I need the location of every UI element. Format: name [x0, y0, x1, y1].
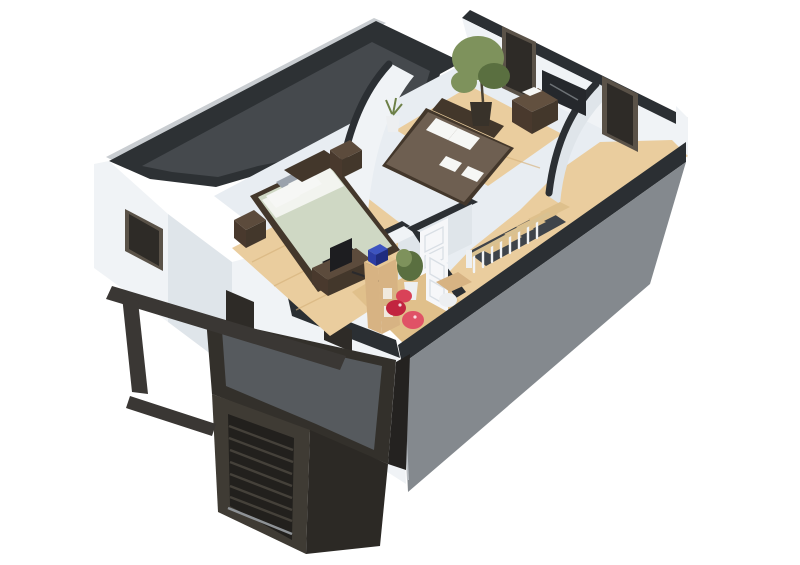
pouf-highlight — [398, 303, 401, 306]
plant-pot — [470, 102, 492, 126]
pouf-highlight — [413, 315, 416, 318]
white-plant-pot — [386, 116, 400, 132]
white-seat — [439, 293, 457, 307]
red-pouf — [402, 311, 424, 329]
shelf-cubby — [383, 288, 392, 299]
floorplan-render: 3D cutaway floor plan render - upper flo… — [0, 0, 800, 565]
red-pouf — [386, 300, 406, 316]
plant-foliage-shade — [478, 63, 510, 89]
floorplan-svg: 3D cutaway floor plan render - upper flo… — [0, 0, 800, 565]
shelf-desk — [364, 253, 400, 334]
carport-post — [122, 296, 148, 394]
stair-newel — [466, 250, 472, 268]
carport-beam-low — [126, 396, 216, 436]
small-plant-foliage-light — [396, 249, 412, 267]
plant-foliage-low — [451, 71, 477, 93]
